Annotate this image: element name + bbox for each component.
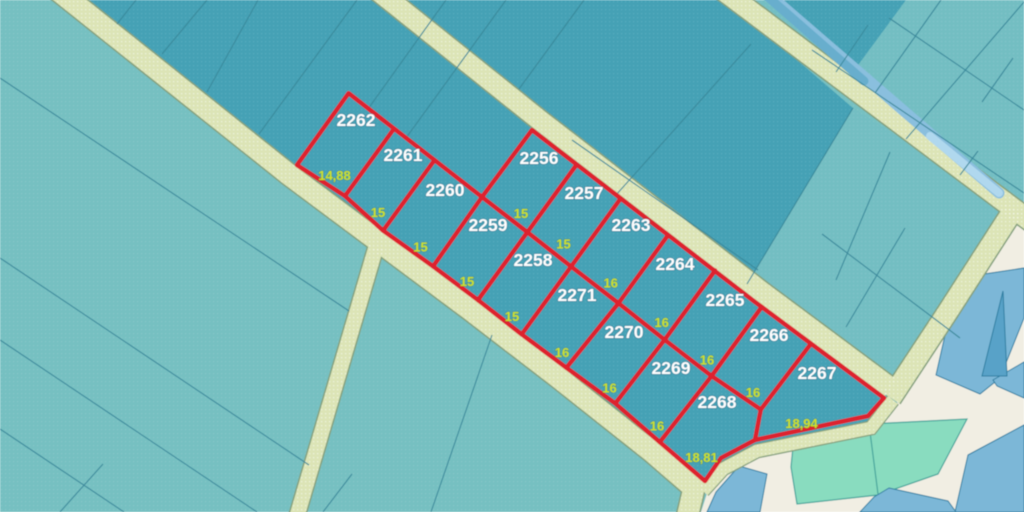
svg-text:2260: 2260: [426, 180, 465, 200]
svg-text:14,88: 14,88: [318, 168, 351, 183]
svg-text:15: 15: [556, 237, 570, 252]
svg-text:2265: 2265: [706, 290, 745, 310]
svg-text:2264: 2264: [656, 254, 695, 274]
svg-text:18,94: 18,94: [785, 416, 818, 431]
svg-text:2256: 2256: [520, 148, 559, 168]
svg-text:15: 15: [460, 274, 474, 289]
svg-text:2268: 2268: [698, 392, 737, 412]
svg-text:16: 16: [650, 419, 664, 434]
svg-text:2263: 2263: [612, 215, 651, 235]
svg-text:16: 16: [700, 353, 714, 368]
svg-text:16: 16: [602, 381, 616, 396]
svg-text:2261: 2261: [384, 145, 423, 165]
svg-text:18,81: 18,81: [685, 450, 718, 465]
svg-text:2258: 2258: [514, 250, 553, 270]
svg-text:15: 15: [371, 205, 385, 220]
svg-text:16: 16: [555, 345, 569, 360]
svg-text:16: 16: [746, 385, 760, 400]
svg-text:2270: 2270: [605, 322, 644, 342]
svg-text:2267: 2267: [798, 363, 837, 383]
svg-text:15: 15: [413, 240, 427, 255]
svg-text:2259: 2259: [469, 215, 508, 235]
svg-text:2262: 2262: [337, 110, 376, 130]
svg-text:2257: 2257: [565, 183, 604, 203]
svg-text:16: 16: [654, 315, 668, 330]
svg-text:2271: 2271: [558, 285, 597, 305]
svg-text:15: 15: [514, 206, 528, 221]
svg-text:2266: 2266: [750, 325, 789, 345]
svg-text:2269: 2269: [652, 358, 691, 378]
svg-text:16: 16: [603, 276, 617, 291]
svg-text:15: 15: [505, 309, 519, 324]
